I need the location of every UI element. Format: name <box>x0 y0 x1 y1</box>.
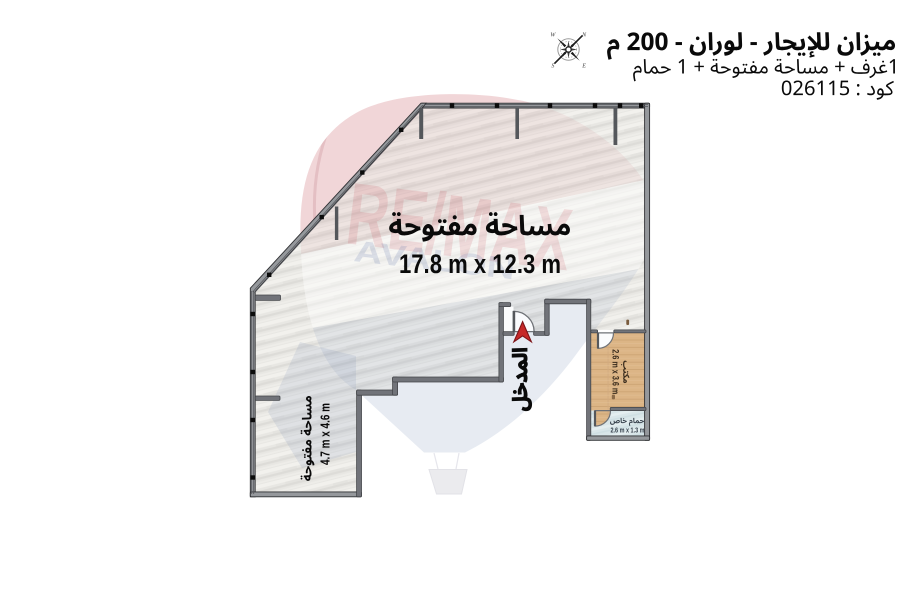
svg-text:2.6 m x 1.3 m: 2.6 m x 1.3 m <box>611 426 645 435</box>
svg-text:17.8 m x 12.3 m: 17.8 m x 12.3 m <box>399 249 561 279</box>
svg-text:2.6 m x 3.6 m: 2.6 m x 3.6 m <box>610 349 621 394</box>
svg-text:E: E <box>581 64 586 70</box>
svg-text:N: N <box>581 32 587 38</box>
svg-text:S: S <box>551 64 554 70</box>
svg-text:4.7 m x 4.6 m: 4.7 m x 4.6 m <box>319 403 333 465</box>
svg-text:W: W <box>550 32 556 38</box>
